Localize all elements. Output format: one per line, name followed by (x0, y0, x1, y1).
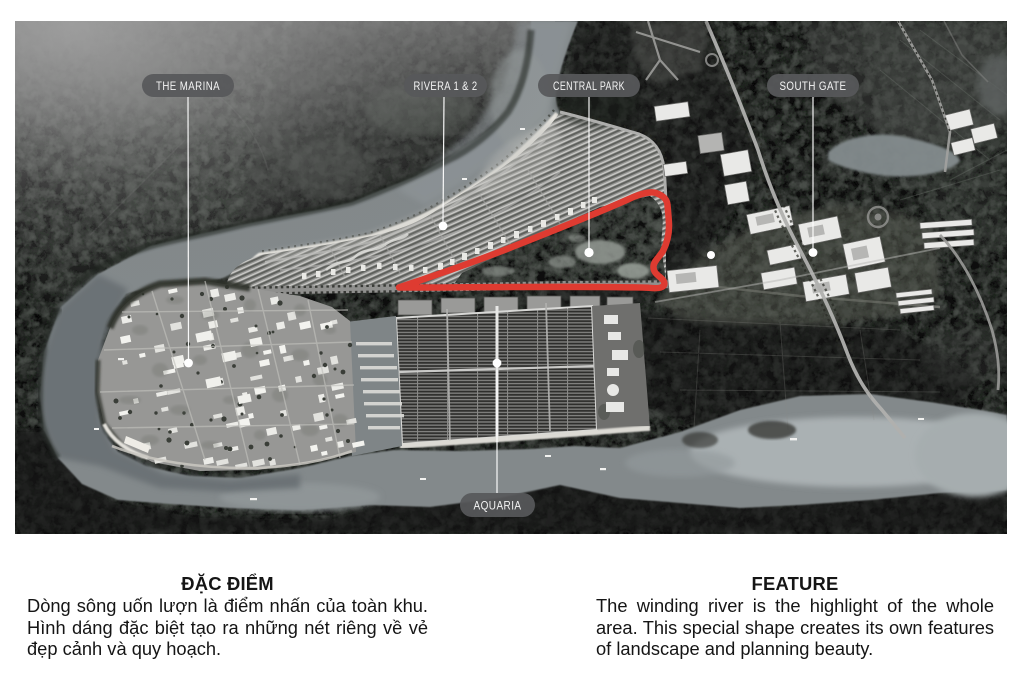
svg-text:THE MARINA: THE MARINA (156, 80, 220, 93)
svg-text:RIVERA 1 & 2: RIVERA 1 & 2 (414, 80, 478, 93)
svg-text:CENTRAL PARK: CENTRAL PARK (553, 80, 625, 93)
svg-text:SOUTH GATE: SOUTH GATE (780, 80, 847, 93)
svg-text:AQUARIA: AQUARIA (474, 500, 522, 513)
